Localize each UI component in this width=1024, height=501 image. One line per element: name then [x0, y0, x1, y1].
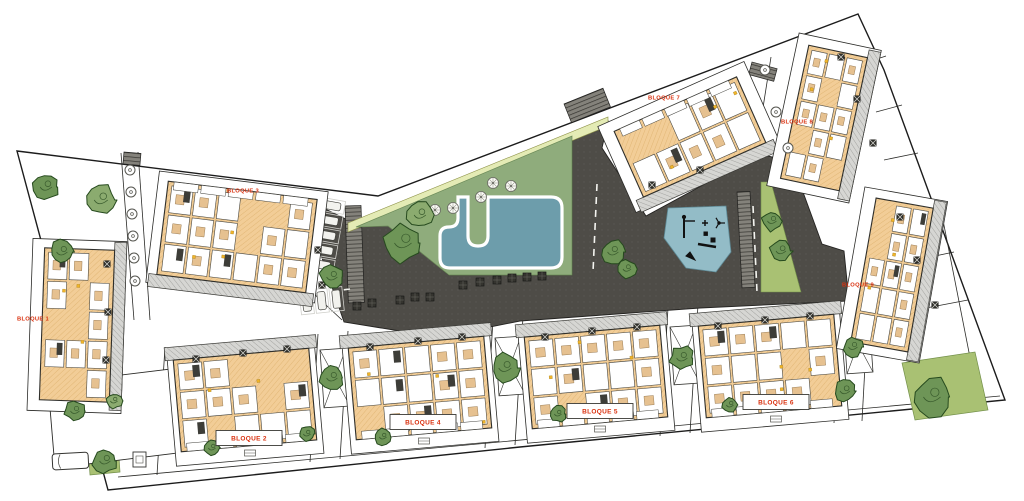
- block-label-4: BLOQUE 4: [405, 419, 441, 426]
- building-block-1: [27, 238, 127, 413]
- stair-marker-icon: [870, 140, 876, 146]
- stair-marker-icon: [807, 313, 813, 319]
- planter-icon: [426, 293, 434, 301]
- planter-icon: [493, 276, 501, 284]
- street-tree-icon: [125, 165, 135, 175]
- block-label-group-7: BLOQUE 7: [648, 95, 680, 101]
- balcony: [636, 410, 658, 420]
- entry-dot: [367, 372, 370, 375]
- entry-dot: [630, 356, 633, 359]
- street-tree-icon: [129, 253, 139, 263]
- stair-marker-icon: [697, 167, 703, 173]
- street-tree-icon: [127, 209, 137, 219]
- balcony: [460, 421, 482, 431]
- block-label-6: BLOQUE 6: [758, 399, 794, 406]
- parasol-icon: [476, 192, 487, 203]
- block-label-1: BLOQUE 1: [17, 316, 50, 322]
- pedestrian-crossing: [123, 152, 141, 165]
- entrance-canopy: [419, 438, 430, 444]
- stair-marker-icon: [838, 54, 844, 60]
- entry-dot: [892, 253, 895, 256]
- stair-marker-icon: [193, 356, 199, 362]
- stair-marker-icon: [103, 357, 109, 363]
- stair-marker-icon: [105, 309, 111, 315]
- parked-car-icon: [52, 452, 89, 470]
- parasol-icon: [488, 178, 499, 189]
- stair-marker-icon: [932, 302, 938, 308]
- utility-box: [133, 452, 146, 467]
- block-label-group-9: BLOQUE 9: [842, 282, 875, 288]
- block-label-group-1: BLOQUE 1: [17, 316, 50, 322]
- block-label-group-2: BLOQUE 2: [216, 431, 282, 446]
- site-plan-canvas: BLOQUE 1BLOQUE 2BLOQUE 3BLOQUE 4BLOQUE 5…: [0, 0, 1024, 501]
- stair-marker-icon: [542, 334, 548, 340]
- entrance-canopy: [595, 426, 606, 432]
- street-tree-icon: [760, 65, 770, 75]
- street-tree-icon: [128, 231, 138, 241]
- planter-icon: [508, 274, 516, 282]
- stair-marker-icon: [897, 214, 903, 220]
- entry-dot: [208, 389, 211, 392]
- block-label-group-6: BLOQUE 6: [743, 395, 809, 410]
- entry-dot: [780, 388, 783, 391]
- block-label-group-5: BLOQUE 5: [567, 404, 633, 419]
- street-tree-icon: [771, 107, 781, 117]
- entry-dot: [482, 420, 485, 423]
- stair-marker-icon: [762, 317, 768, 323]
- block-label-3: BLOQUE 3: [227, 188, 260, 194]
- stair-marker-icon: [914, 257, 920, 263]
- building-block-6: [689, 301, 851, 433]
- car-icon: [317, 291, 327, 310]
- planter-icon: [353, 302, 361, 310]
- stair-marker-icon: [104, 261, 110, 267]
- entry-dot: [81, 340, 84, 343]
- entry-dot: [192, 255, 195, 258]
- block-label-8: BLOQUE 8: [781, 119, 814, 125]
- stair-marker-icon: [649, 182, 655, 188]
- block-label-group-8: BLOQUE 8: [781, 119, 814, 125]
- entry-dot: [77, 284, 80, 287]
- planter-icon: [368, 299, 376, 307]
- entry-dot: [829, 137, 833, 141]
- planter-icon: [459, 281, 467, 289]
- parasol-icon: [506, 181, 517, 192]
- entry-dot: [891, 218, 894, 221]
- entrance-canopy: [245, 450, 256, 456]
- stair-marker-icon: [715, 323, 721, 329]
- balcony: [810, 399, 832, 409]
- street-tree-icon: [783, 143, 793, 153]
- car-icon: [332, 290, 342, 309]
- swing-top-icon: [682, 215, 685, 218]
- entry-dot: [780, 365, 783, 368]
- entry-dot: [257, 379, 260, 382]
- block-label-group-3: BLOQUE 3: [227, 188, 260, 194]
- site-plan: BLOQUE 1BLOQUE 2BLOQUE 3BLOQUE 4BLOQUE 5…: [0, 0, 1024, 501]
- block-label-7: BLOQUE 7: [648, 95, 680, 101]
- planter-icon: [411, 293, 419, 301]
- entry-dot: [549, 376, 552, 379]
- entry-dot: [810, 87, 814, 91]
- entry-dot: [578, 341, 581, 344]
- stair-marker-icon: [854, 96, 860, 102]
- block-label-9: BLOQUE 9: [842, 282, 875, 288]
- entry-dot: [825, 59, 829, 63]
- planter-icon: [396, 296, 404, 304]
- planter-icon: [476, 278, 484, 286]
- stair-marker-icon: [634, 324, 640, 330]
- planter-icon: [523, 273, 531, 281]
- stair-marker-icon: [240, 350, 246, 356]
- stair-marker-icon: [367, 344, 373, 350]
- stair-marker-icon: [589, 328, 595, 334]
- street-tree-icon: [126, 187, 136, 197]
- block-label-group-4: BLOQUE 4: [390, 415, 456, 430]
- stair-marker-icon: [459, 334, 465, 340]
- building-block-5: [515, 312, 677, 444]
- entry-dot: [230, 231, 233, 234]
- tree-icon: [32, 176, 58, 200]
- stair-marker-icon: [284, 346, 290, 352]
- entry-dot: [62, 289, 65, 292]
- street-tree-icon: [130, 276, 140, 286]
- parasol-icon: [448, 203, 459, 214]
- stair-marker-icon: [315, 247, 321, 253]
- entry-dot: [222, 255, 225, 258]
- sandbox-icon: [704, 232, 707, 235]
- planter-icon: [538, 272, 546, 280]
- stair-marker-icon: [415, 338, 421, 344]
- block-label-2: BLOQUE 2: [231, 435, 267, 442]
- entry-dot: [436, 374, 439, 377]
- entrance-canopy: [771, 416, 782, 422]
- entry-dot: [809, 368, 812, 371]
- block-label-5: BLOQUE 5: [582, 408, 618, 415]
